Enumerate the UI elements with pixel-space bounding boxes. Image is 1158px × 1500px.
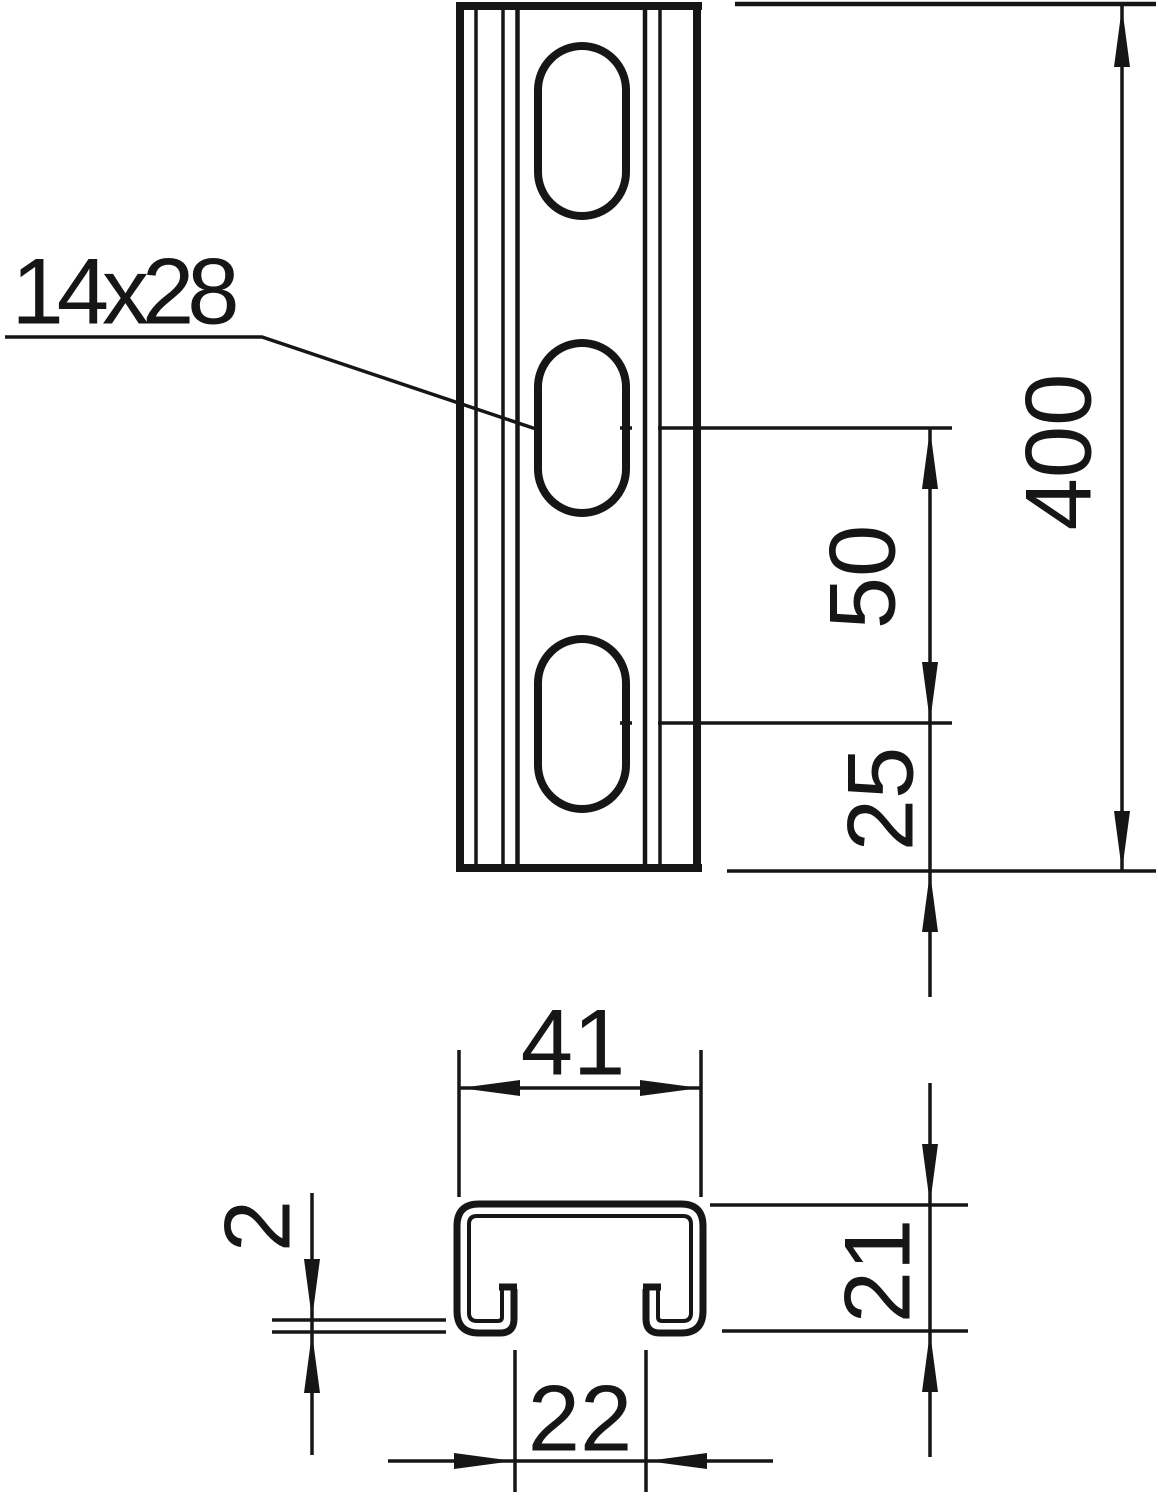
strut-channel-drawing: 14x28 400 50 25 41 xyxy=(0,0,1158,1500)
total-length-value: 400 xyxy=(1006,374,1111,531)
wall-thickness-value: 2 xyxy=(205,1200,310,1252)
arrowhead-down-outside xyxy=(304,1259,320,1319)
profile-inner-contour xyxy=(469,1216,691,1321)
dimension-wall-thickness: 2 xyxy=(205,1193,447,1455)
dimension-profile-width: 41 xyxy=(459,990,701,1198)
profile-width-value: 41 xyxy=(521,990,626,1095)
dimension-end-distance: 25 xyxy=(828,747,939,932)
technical-drawing-page: 14x28 400 50 25 41 xyxy=(0,0,1158,1500)
arrowhead-right xyxy=(640,1080,700,1096)
dimension-profile-height: 21 xyxy=(710,1083,968,1457)
slot-hole-bottom xyxy=(538,639,626,809)
arrowhead-left-outside xyxy=(647,1453,707,1469)
rail-front-view xyxy=(457,2,702,872)
profile-cross-section xyxy=(457,1204,703,1333)
slot-hole-middle xyxy=(538,343,626,513)
arrowhead-down-outside xyxy=(922,1144,938,1204)
arrowhead-left xyxy=(460,1080,520,1096)
slot-size-label: 14x28 xyxy=(11,239,236,344)
hole-pitch-value: 50 xyxy=(810,525,915,630)
arrowhead-up-outside xyxy=(922,1332,938,1392)
arrowhead-up-outside xyxy=(304,1333,320,1393)
end-distance-value: 25 xyxy=(828,747,933,852)
dimension-slot-opening: 22 xyxy=(388,1350,773,1492)
dimension-total-length: 400 xyxy=(727,4,1156,872)
dimension-hole-pitch: 50 xyxy=(620,428,952,997)
profile-outer-contour xyxy=(457,1204,703,1333)
arrowhead-up xyxy=(922,429,938,489)
arrowhead-up xyxy=(1114,7,1130,67)
arrowhead-up-outside xyxy=(922,872,938,932)
slot-opening-value: 22 xyxy=(528,1366,633,1471)
profile-height-value: 21 xyxy=(825,1219,930,1324)
arrowhead-down xyxy=(922,662,938,722)
slot-hole-top xyxy=(538,46,626,216)
arrowhead-down xyxy=(1114,811,1130,871)
arrowhead-right-outside xyxy=(454,1453,514,1469)
